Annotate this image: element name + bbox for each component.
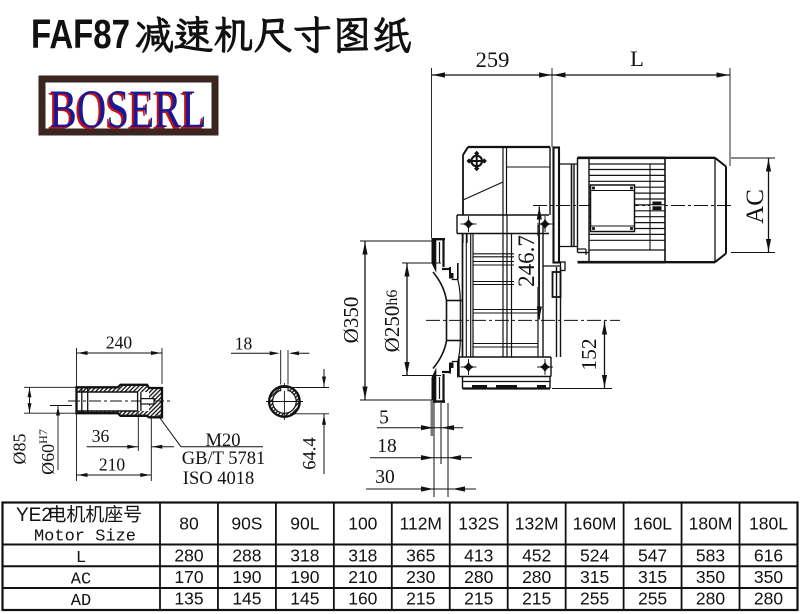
svg-text:210: 210 [348, 567, 377, 587]
svg-text:GB/T 5781: GB/T 5781 [182, 449, 265, 469]
svg-text:180L: 180L [749, 514, 788, 534]
svg-text:AC: AC [742, 189, 769, 224]
svg-text:210: 210 [99, 455, 126, 475]
svg-text:100: 100 [348, 514, 377, 534]
svg-text:190: 190 [232, 567, 261, 587]
svg-text:190: 190 [290, 567, 319, 587]
svg-text:160L: 160L [633, 514, 672, 534]
svg-text:90L: 90L [290, 514, 319, 534]
svg-text:280: 280 [696, 589, 725, 609]
svg-text:350: 350 [696, 567, 725, 587]
svg-text:160: 160 [348, 589, 377, 609]
svg-text:132M: 132M [515, 514, 559, 534]
svg-text:215: 215 [464, 589, 493, 609]
svg-text:Ø250h6: Ø250h6 [380, 290, 404, 353]
svg-text:L: L [630, 46, 644, 71]
svg-text:280: 280 [464, 567, 493, 587]
svg-text:80: 80 [179, 514, 199, 534]
svg-text:280: 280 [754, 589, 783, 609]
svg-text:64.4: 64.4 [301, 437, 321, 469]
svg-text:288: 288 [232, 546, 261, 566]
svg-text:90S: 90S [231, 514, 262, 534]
svg-text:AD: AD [71, 592, 91, 611]
svg-text:616: 616 [754, 546, 783, 566]
svg-text:259: 259 [476, 47, 510, 72]
svg-text:YE2: YE2 [16, 505, 52, 526]
svg-text:36: 36 [92, 426, 110, 446]
svg-text:524: 524 [580, 546, 609, 566]
svg-text:583: 583 [696, 546, 725, 566]
svg-text:180M: 180M [689, 514, 733, 534]
svg-text:135: 135 [174, 589, 203, 609]
svg-text:160M: 160M [573, 514, 617, 534]
svg-text:145: 145 [232, 589, 261, 609]
svg-text:215: 215 [406, 589, 435, 609]
svg-text:318: 318 [348, 546, 377, 566]
svg-text:5: 5 [379, 408, 389, 429]
svg-text:547: 547 [638, 546, 667, 566]
svg-text:255: 255 [580, 589, 609, 609]
svg-text:280: 280 [174, 546, 203, 566]
svg-text:350: 350 [754, 567, 783, 587]
svg-text:152: 152 [577, 338, 601, 370]
svg-text:M20: M20 [206, 431, 241, 451]
svg-text:365: 365 [406, 546, 435, 566]
svg-text:255: 255 [638, 589, 667, 609]
svg-text:18: 18 [235, 333, 253, 353]
svg-text:30: 30 [375, 467, 395, 488]
svg-text:ISO 4018: ISO 4018 [183, 469, 254, 489]
svg-text:246.7: 246.7 [514, 235, 539, 287]
svg-text:280: 280 [522, 567, 551, 587]
svg-text:413: 413 [464, 546, 493, 566]
svg-text:240: 240 [106, 332, 133, 352]
svg-text:AC: AC [71, 571, 91, 590]
svg-text:318: 318 [290, 546, 319, 566]
svg-text:18: 18 [377, 436, 397, 457]
svg-text:Ø350: Ø350 [339, 297, 363, 344]
svg-text:Motor Size: Motor Size [34, 528, 136, 547]
svg-text:FAF87: FAF87 [31, 11, 130, 57]
svg-text:132S: 132S [458, 514, 499, 534]
svg-text:230: 230 [406, 567, 435, 587]
svg-text:BOSERL: BOSERL [50, 79, 207, 139]
svg-text:Ø85: Ø85 [10, 434, 30, 465]
svg-text:315: 315 [638, 567, 667, 587]
svg-text:315: 315 [580, 567, 609, 587]
svg-text:215: 215 [522, 589, 551, 609]
svg-text:L: L [76, 549, 86, 568]
svg-text:112M: 112M [400, 514, 442, 534]
svg-text:145: 145 [290, 589, 319, 609]
svg-text:452: 452 [522, 546, 551, 566]
svg-text:170: 170 [174, 567, 203, 587]
